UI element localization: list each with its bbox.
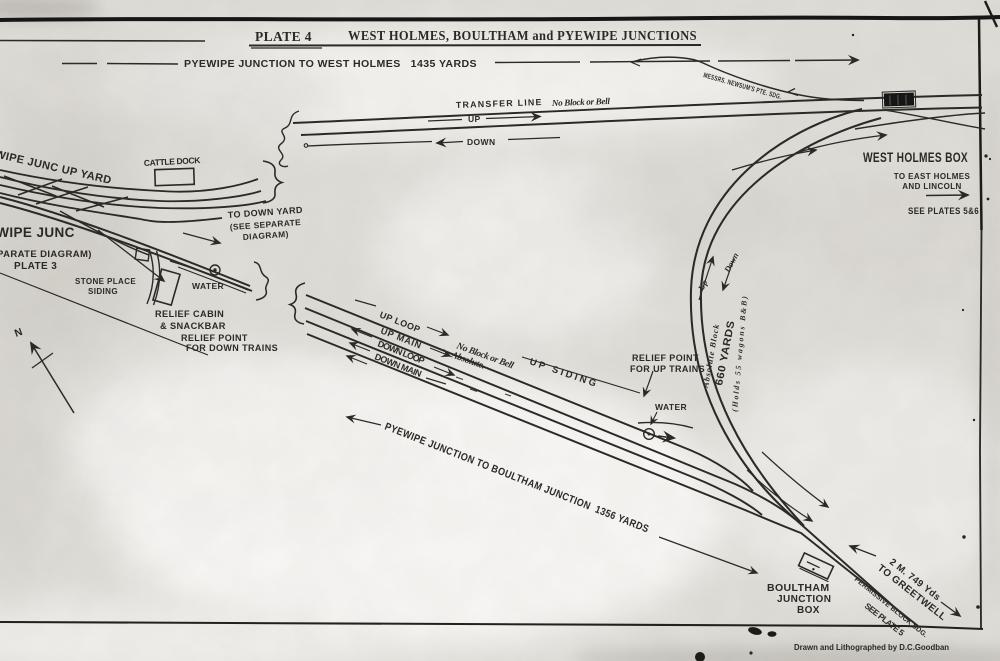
svg-text:RELIEF CABIN: RELIEF CABIN xyxy=(155,309,224,319)
svg-text:DOWN: DOWN xyxy=(467,137,496,147)
svg-text:BOULTHAM: BOULTHAM xyxy=(767,582,830,594)
svg-text:JUNCTION: JUNCTION xyxy=(777,594,831,605)
svg-text:WATER: WATER xyxy=(192,281,224,291)
svg-text:No Block or Bell: No Block or Bell xyxy=(551,96,611,108)
svg-text:SIDING: SIDING xyxy=(88,287,118,296)
svg-text:WEST HOLMES BOX: WEST HOLMES BOX xyxy=(863,149,968,165)
svg-text:UP: UP xyxy=(468,114,481,124)
svg-text:PYEWIPE JUNC: PYEWIPE JUNC xyxy=(0,225,75,240)
svg-text:WATER: WATER xyxy=(655,402,687,412)
svg-text:SEE PLATES 5&6: SEE PLATES 5&6 xyxy=(908,206,979,217)
svg-text:TO EAST HOLMES: TO EAST HOLMES xyxy=(894,172,971,181)
svg-text:& SNACKBAR: & SNACKBAR xyxy=(160,321,226,331)
svg-text:RELIEF POINT: RELIEF POINT xyxy=(181,333,248,343)
svg-text:FOR UP TRAINS: FOR UP TRAINS xyxy=(630,364,705,374)
svg-text:WEST HOLMES, BOULTHAM and PYEW: WEST HOLMES, BOULTHAM and PYEWIPE JUNCTI… xyxy=(348,28,697,43)
svg-text:STONE PLACE: STONE PLACE xyxy=(75,277,136,286)
svg-text:BOX: BOX xyxy=(797,605,820,616)
svg-text:AND LINCOLN: AND LINCOLN xyxy=(902,182,962,191)
svg-text:PLATE 4: PLATE 4 xyxy=(255,29,312,44)
svg-text:(SEPARATE DIAGRAM): (SEPARATE DIAGRAM) xyxy=(0,249,92,260)
svg-text:PLATE 3: PLATE 3 xyxy=(14,261,57,272)
svg-text:PYEWIPE JUNCTION TO WEST HOLME: PYEWIPE JUNCTION TO WEST HOLMES 1435 YAR… xyxy=(184,58,477,70)
svg-text:Drawn and Lithographed by D.C.: Drawn and Lithographed by D.C.Goodban xyxy=(794,643,949,652)
svg-text:RELIEF POINT: RELIEF POINT xyxy=(632,353,699,363)
